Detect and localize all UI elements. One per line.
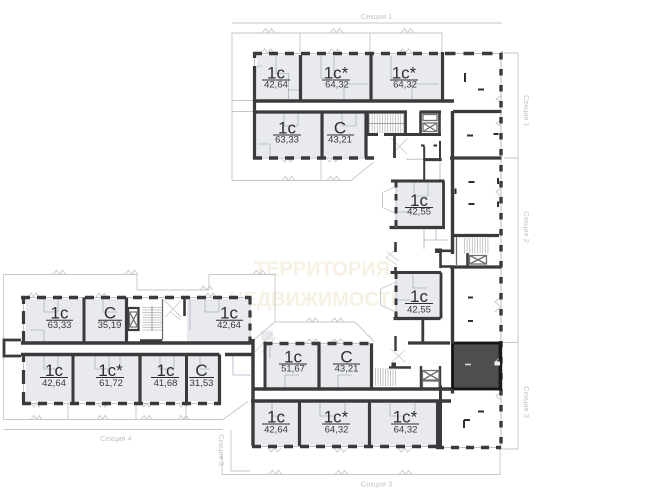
svg-text:Секция 1: Секция 1 (522, 95, 531, 127)
svg-text:31,53: 31,53 (190, 378, 214, 389)
svg-text:42,64: 42,64 (264, 80, 288, 91)
svg-text:НЕДВИЖИМОСТИ: НЕДВИЖИМОСТИ (229, 289, 405, 311)
svg-text:51,67: 51,67 (281, 364, 305, 375)
svg-text:Секция 3: Секция 3 (361, 480, 393, 489)
svg-text:42,55: 42,55 (407, 305, 431, 316)
svg-text:Секция 3: Секция 3 (522, 386, 531, 418)
svg-text:Секция 2: Секция 2 (522, 211, 531, 243)
svg-text:43,21: 43,21 (328, 135, 352, 146)
svg-text:63,33: 63,33 (275, 135, 299, 146)
svg-text:64,32: 64,32 (325, 425, 349, 436)
svg-text:35,19: 35,19 (98, 320, 122, 331)
svg-text:64,32: 64,32 (393, 80, 417, 91)
svg-text:Секция 1: Секция 1 (361, 12, 393, 21)
svg-text:41,68: 41,68 (154, 378, 178, 389)
svg-text:Секция 3: Секция 3 (217, 434, 226, 466)
svg-text:42,64: 42,64 (217, 320, 241, 331)
svg-text:ТЕРРИТОРИЯ: ТЕРРИТОРИЯ (254, 259, 390, 281)
svg-text:42,64: 42,64 (42, 378, 66, 389)
svg-text:64,32: 64,32 (325, 80, 349, 91)
svg-text:42,64: 42,64 (264, 425, 288, 436)
svg-text:Секция 4: Секция 4 (100, 434, 132, 443)
svg-text:64,32: 64,32 (394, 425, 418, 436)
svg-text:42,55: 42,55 (407, 207, 431, 218)
svg-text:61,72: 61,72 (99, 378, 123, 389)
svg-text:63,33: 63,33 (48, 320, 72, 331)
svg-text:43,21: 43,21 (335, 364, 359, 375)
